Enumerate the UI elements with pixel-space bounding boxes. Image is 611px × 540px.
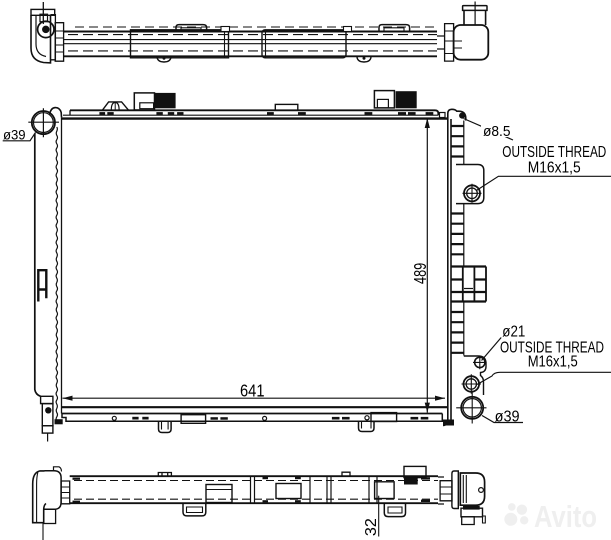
svg-text:M16x1,5: M16x1,5	[528, 354, 578, 371]
svg-text:ø39: ø39	[495, 409, 520, 426]
svg-text:641: 641	[240, 381, 265, 401]
svg-text:489: 489	[410, 263, 430, 284]
svg-text:ø8.5: ø8.5	[483, 124, 511, 140]
svg-text:OUTSIDE THREAD: OUTSIDE THREAD	[502, 144, 606, 161]
svg-text:ø21: ø21	[502, 324, 525, 341]
svg-text:32: 32	[363, 518, 380, 536]
svg-text:Avito: Avito	[534, 499, 597, 534]
svg-text:M16x1,5: M16x1,5	[528, 160, 581, 177]
svg-text:ø39: ø39	[3, 126, 26, 142]
